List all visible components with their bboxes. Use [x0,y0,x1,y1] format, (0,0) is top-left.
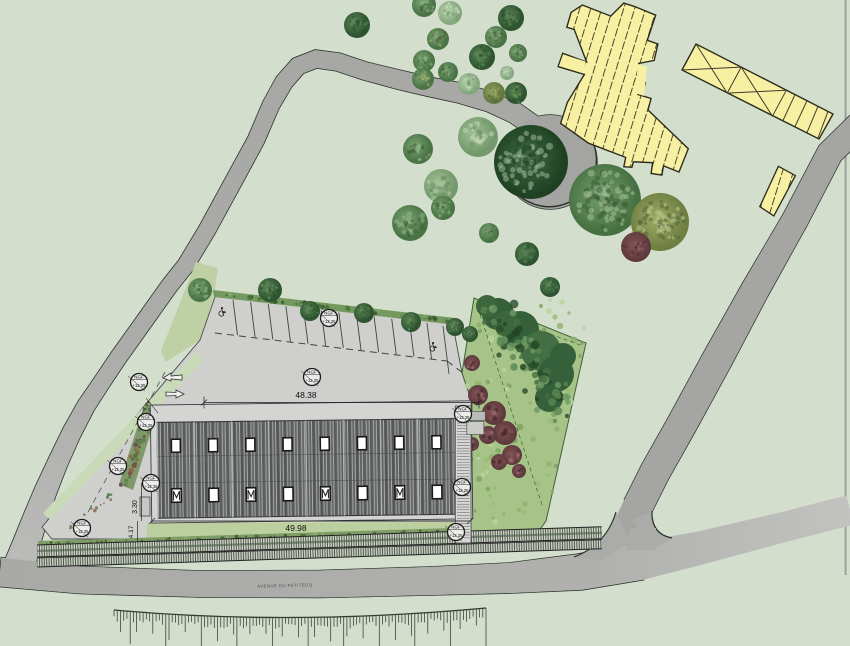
svg-text:+12.35: +12.35 [140,423,154,428]
svg-text:+12.35: +12.35 [306,378,320,383]
svg-text:+12.35: +12.35 [450,533,464,538]
svg-text:NGF: NGF [134,374,144,379]
svg-text:+12.35: +12.35 [145,484,159,489]
svg-text:49.98: 49.98 [285,523,307,533]
svg-text:NGF: NGF [307,369,317,374]
svg-text:+12.35: +12.35 [112,467,126,472]
svg-text:4.17: 4.17 [128,525,135,538]
svg-text:NGF: NGF [146,475,156,480]
svg-text:NGF: NGF [458,406,468,411]
svg-text:+12.35: +12.35 [133,383,147,388]
svg-text:+12.35: +12.35 [323,319,337,324]
svg-text:NGF: NGF [113,458,123,463]
svg-text:+12.35: +12.35 [457,415,471,420]
svg-text:NGF: NGF [457,479,467,484]
svg-text:3.30: 3.30 [132,500,139,514]
svg-text:48.38: 48.38 [295,390,317,400]
svg-text:+12.35: +12.35 [76,529,90,534]
svg-text:NGF: NGF [141,414,151,419]
svg-text:NGF: NGF [324,310,334,315]
svg-text:NGF: NGF [77,520,87,525]
svg-text:+12.35: +12.35 [456,488,470,493]
svg-text:NGF: NGF [451,524,461,529]
